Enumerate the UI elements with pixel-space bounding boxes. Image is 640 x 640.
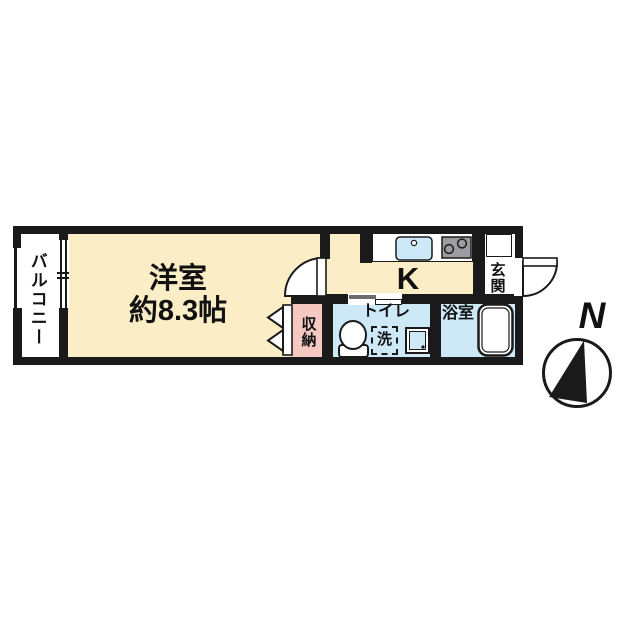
wall-room-kitchen bbox=[320, 232, 330, 259]
bathroom-label: 浴室 bbox=[440, 305, 476, 323]
compass-north-label: N bbox=[572, 296, 612, 337]
storage-folding-door-icon bbox=[264, 303, 294, 357]
balcony-railing bbox=[14, 246, 17, 310]
stove-icon bbox=[441, 236, 472, 259]
wall-storage-right bbox=[322, 294, 333, 359]
wall-balcony-lower bbox=[59, 308, 68, 359]
laundry-space: 洗 bbox=[371, 326, 398, 355]
wall-top bbox=[13, 226, 523, 234]
bathtub-icon bbox=[477, 303, 514, 357]
entrance-label: 玄関 bbox=[488, 258, 505, 298]
balcony-window-line-outer bbox=[60, 240, 62, 308]
floorplan-page: 洗 バルコニー 洋室 bbox=[0, 0, 640, 640]
main-room-label: 洋室 約8.3帖 bbox=[98, 264, 258, 328]
wall-kitchen-entrance bbox=[473, 232, 485, 298]
balcony-window-line-inner bbox=[65, 240, 67, 308]
balcony-window-latch bbox=[57, 272, 69, 274]
laundry-label: 洗 bbox=[377, 332, 392, 349]
main-room-size: 約8.3帖 bbox=[98, 296, 258, 328]
storage-label: 収納 bbox=[299, 310, 316, 354]
compass-icon bbox=[541, 336, 615, 410]
balcony-label: バルコニー bbox=[27, 243, 46, 355]
balcony-window-latch2 bbox=[57, 277, 69, 279]
shoe-cabinet bbox=[486, 234, 512, 257]
entrance-door-arc-icon bbox=[516, 256, 562, 302]
wall-counter-stub bbox=[360, 232, 372, 263]
wall-bottom bbox=[13, 357, 523, 365]
balcony-corner-bottom bbox=[13, 308, 22, 360]
wall-toilet-bath bbox=[430, 294, 441, 359]
room-door-arc-icon bbox=[283, 256, 329, 300]
toilet-label: トイレ bbox=[348, 303, 424, 321]
window-stub-top bbox=[59, 232, 68, 240]
main-room-name: 洋室 bbox=[98, 264, 258, 296]
washbasin-icon bbox=[405, 327, 430, 354]
toilet-icon bbox=[336, 318, 372, 360]
kitchen-sink-icon bbox=[395, 236, 435, 262]
kitchen-label: K bbox=[380, 262, 436, 296]
toilet-sliding-door-track bbox=[349, 295, 376, 299]
